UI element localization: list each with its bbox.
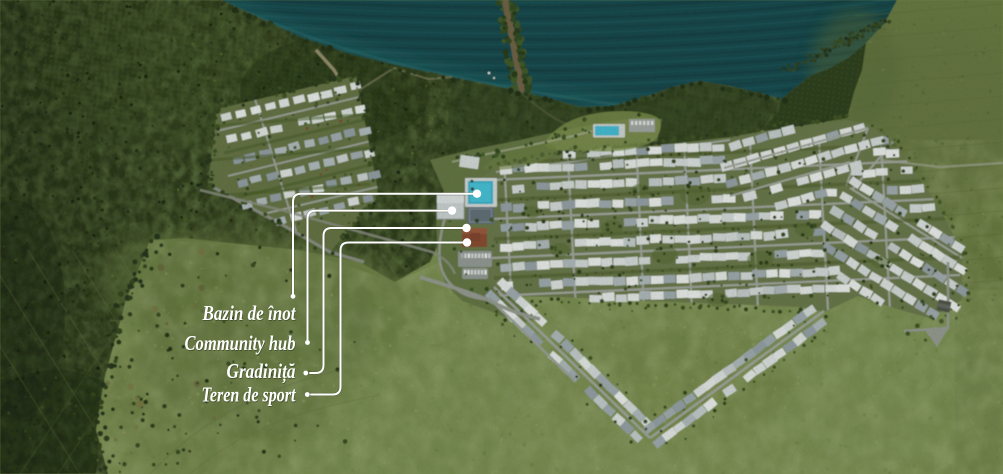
svg-text:Gradiniță: Gradiniță	[227, 359, 296, 384]
svg-text:Teren de sport: Teren de sport	[202, 383, 297, 407]
svg-text:Community hub: Community hub	[185, 331, 296, 355]
svg-text:Bazin de înot: Bazin de înot	[202, 301, 297, 325]
